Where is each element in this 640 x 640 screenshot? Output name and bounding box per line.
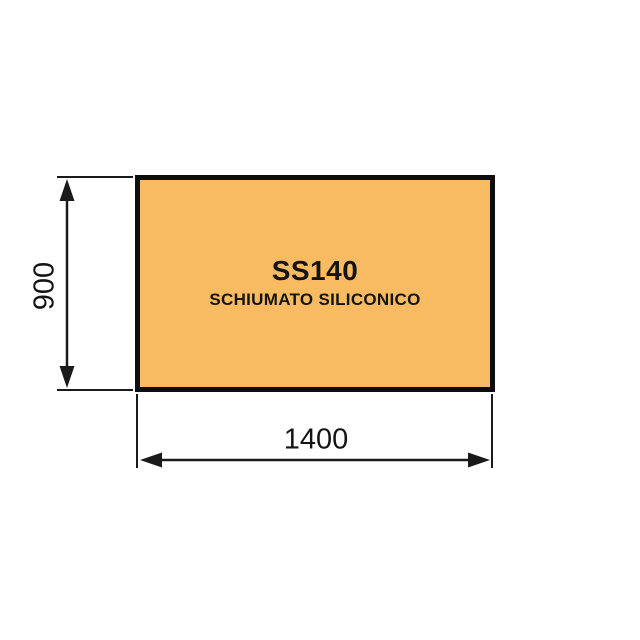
arrow-left-icon: [140, 453, 162, 468]
diagram-canvas: SS140 SCHIUMATO SILICONICO 900 1400: [0, 0, 640, 640]
arrow-right-icon: [468, 453, 490, 468]
height-dimension-label: 900: [31, 262, 60, 310]
panel-material-label: SCHIUMATO SILICONICO: [209, 290, 420, 310]
panel-code-label: SS140: [272, 256, 359, 287]
arrow-up-icon: [60, 179, 75, 201]
width-dimension-label: 1400: [284, 426, 349, 455]
panel-rectangle: SS140 SCHIUMATO SILICONICO: [135, 175, 495, 392]
arrow-down-icon: [60, 366, 75, 388]
